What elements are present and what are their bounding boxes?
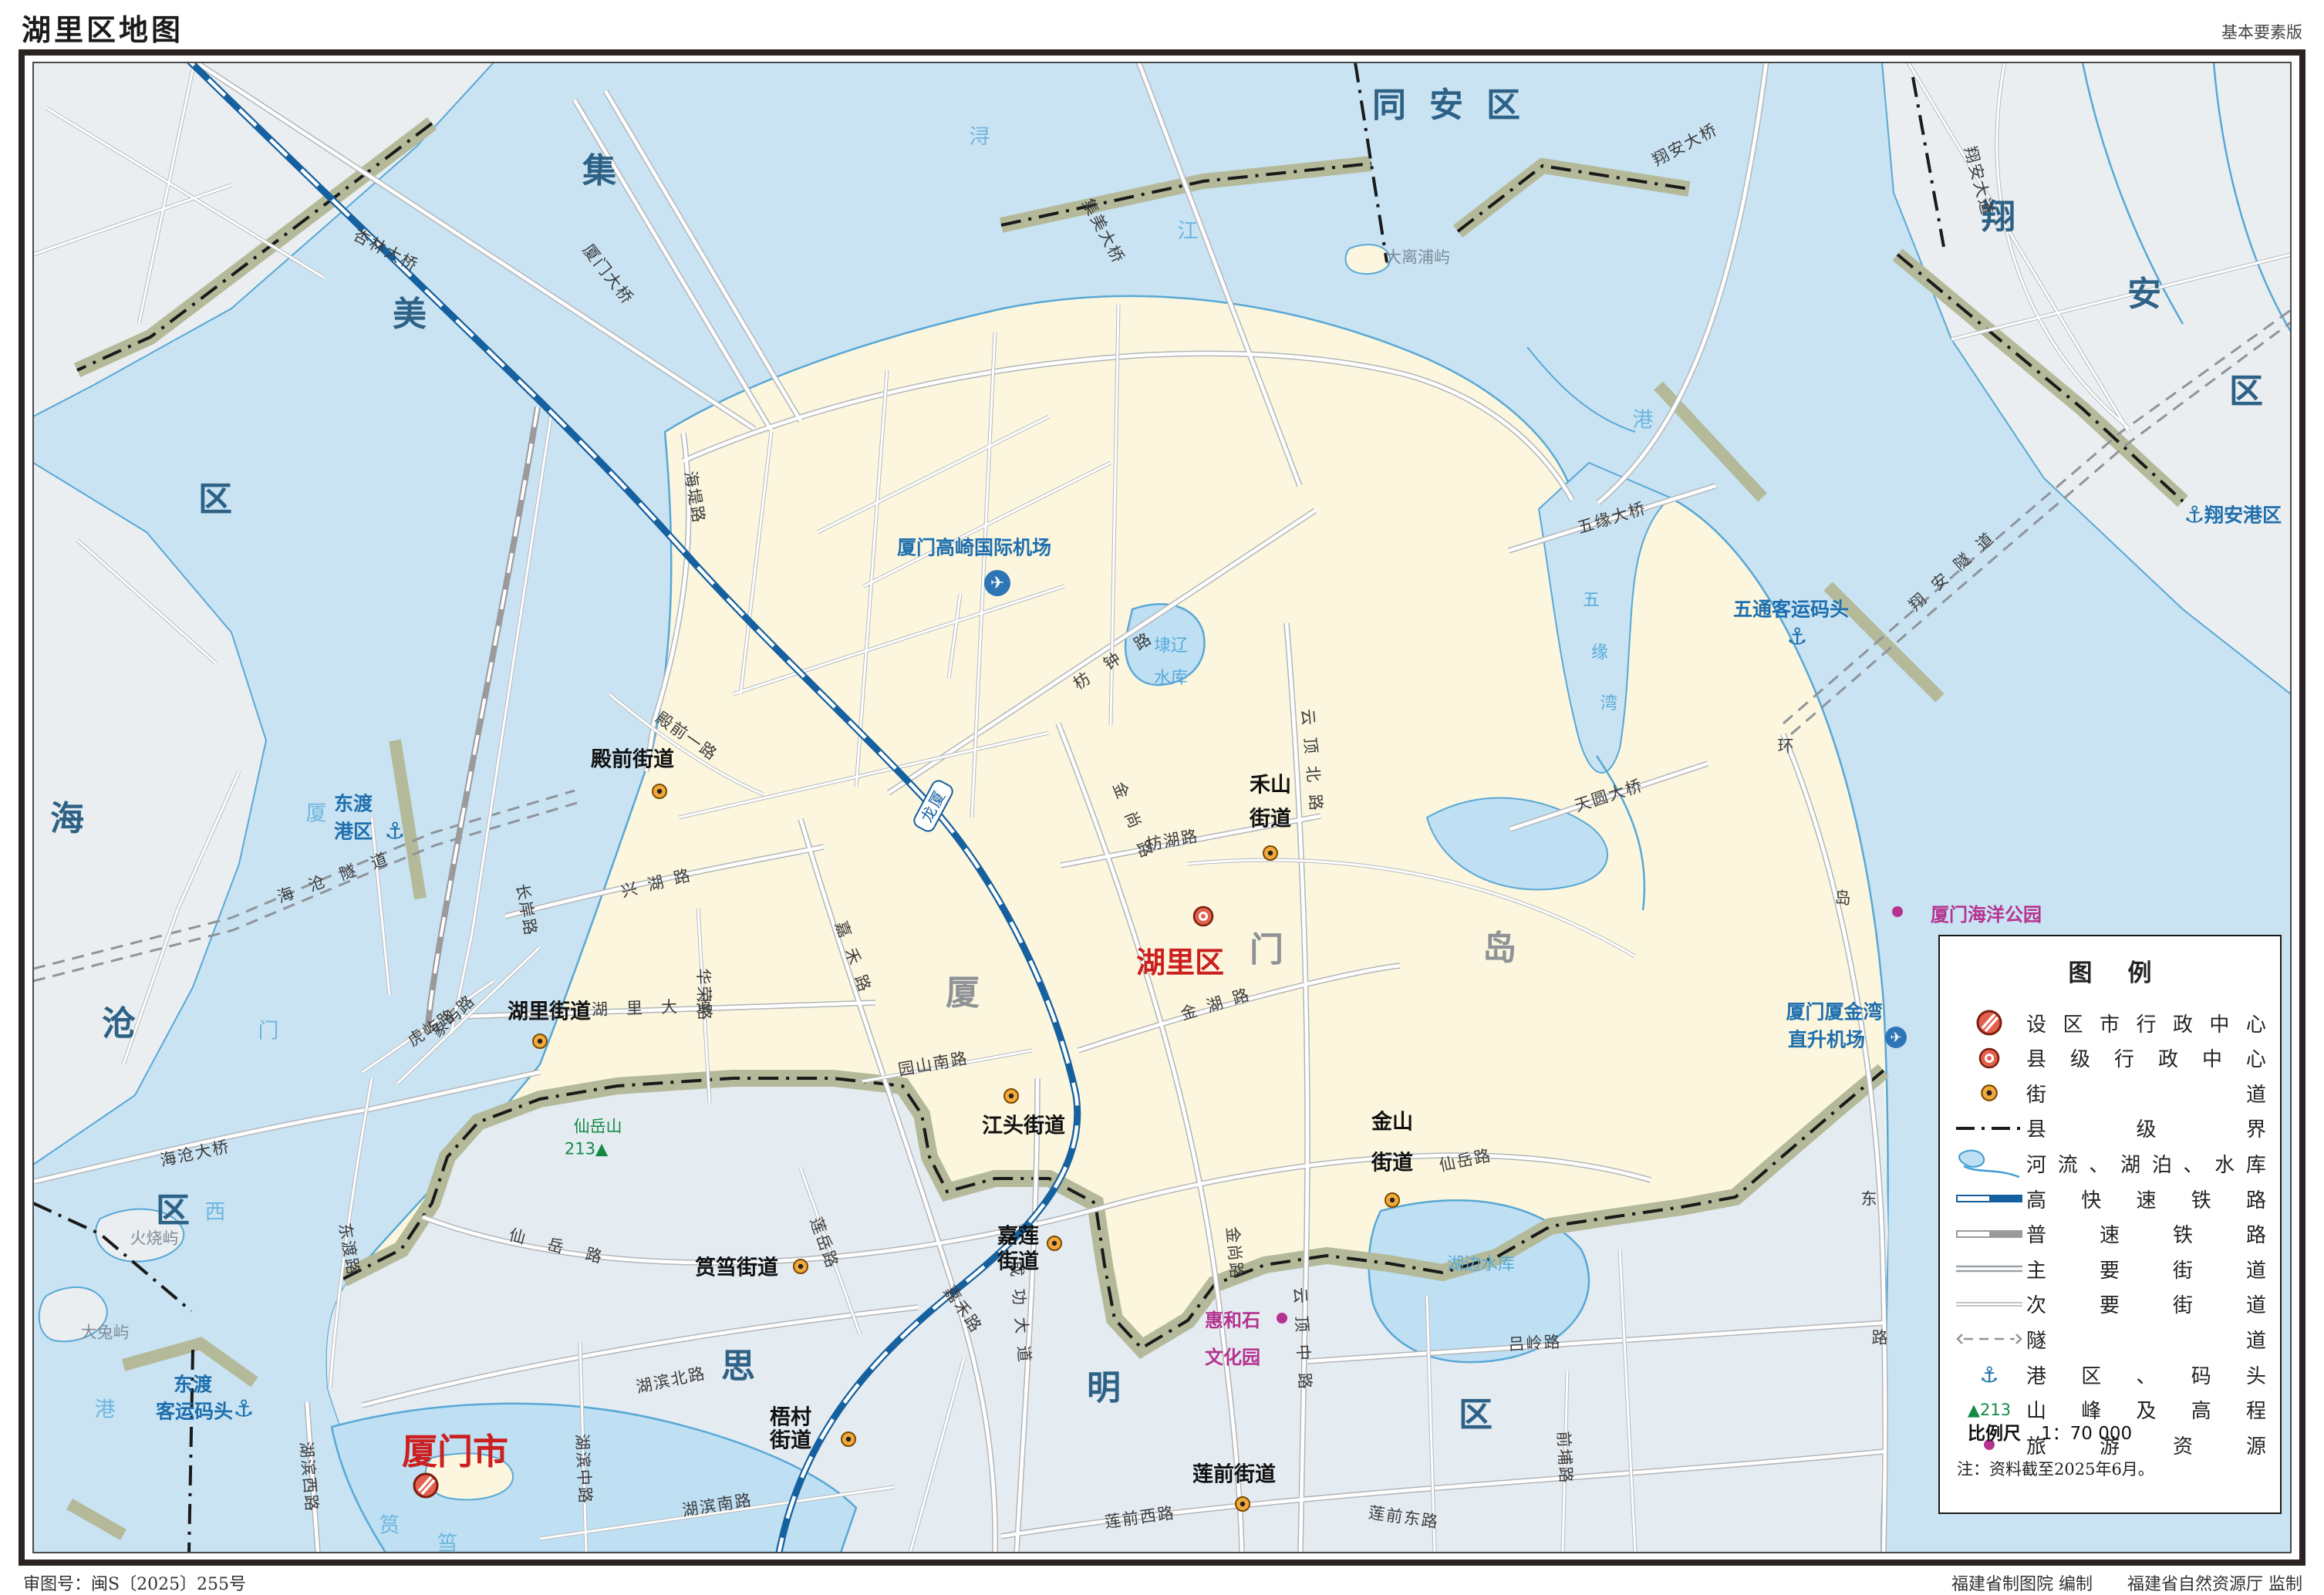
legend-item-label: 主要街道: [2026, 1255, 2266, 1283]
legend-item-rail: 普速铁路: [1952, 1217, 2266, 1251]
county-legend-icon: [1952, 1046, 2026, 1071]
legend-scale-value: 1：70 000: [2041, 1424, 2132, 1444]
legend-item-label: 高快速铁路: [2026, 1185, 2266, 1213]
legend-item-label: 河流、湖泊、水库: [2026, 1149, 2266, 1178]
legend-item-label: 设区市行政中心: [2026, 1009, 2266, 1037]
legend-item-city: 设区市行政中心: [1952, 1006, 2266, 1040]
legend-item-label: 县级界: [2026, 1114, 2266, 1142]
legend-item-label: 街道: [2026, 1079, 2266, 1108]
legend-item-hsr: 高快速铁路: [1952, 1182, 2266, 1216]
road-sec-legend-icon: [1952, 1300, 2026, 1309]
legend-item-label: 普速铁路: [2026, 1219, 2266, 1248]
legend-item-label: 次要街道: [2026, 1290, 2266, 1318]
rail-legend-icon: [1952, 1229, 2026, 1239]
legend-item-boundary: 县级界: [1952, 1111, 2266, 1145]
legend-item-label: 隧道: [2026, 1325, 2266, 1354]
peak-legend-icon: ▲213: [1952, 1401, 2026, 1419]
road-main-legend-icon: [1952, 1263, 2026, 1274]
legend-item-port: ⚓港区、码头: [1952, 1357, 2266, 1391]
legend-item-road-main: 主要街道: [1952, 1252, 2266, 1286]
legend-item-tunnel: 隧道: [1952, 1322, 2266, 1356]
street-legend-icon: [1952, 1083, 2026, 1103]
river-legend-icon: [1952, 1146, 2026, 1180]
legend-scale: 比例尺1：70 000: [1968, 1418, 2132, 1445]
legend-note: 注：资料截至2025年6月。: [1957, 1457, 2154, 1480]
approval-number: 审图号：闽S〔2025〕255号: [23, 1570, 246, 1595]
credit-supervise: 福建省自然资源厅 监制: [2127, 1575, 2302, 1594]
port-legend-icon: ⚓: [1952, 1362, 2026, 1388]
legend-item-county: 县级行政中心: [1952, 1041, 2266, 1075]
tunnel-legend-icon: [1952, 1333, 2026, 1345]
boundary-legend-icon: [1952, 1125, 2026, 1132]
legend-title: 图例: [1940, 953, 2280, 988]
legend: 图例 设区市行政中心县级行政中心街道县级界河流、湖泊、水库高快速铁路普速铁路主要…: [1938, 935, 2282, 1514]
credit-compile: 福建省制图院 编制: [1951, 1575, 2093, 1594]
credits: 福建省制图院 编制 福建省自然资源厅 监制: [1922, 1570, 2302, 1595]
legend-item-road-sec: 次要街道: [1952, 1287, 2266, 1321]
legend-scale-label: 比例尺: [1968, 1424, 2021, 1444]
city-legend-icon: [1952, 1007, 2026, 1038]
legend-item-street: 街道: [1952, 1076, 2266, 1110]
page: 湖里区地图 基本要素版: [0, 0, 2324, 1595]
legend-item-river: 河流、湖泊、水库: [1952, 1146, 2266, 1180]
hsr-legend-icon: [1952, 1193, 2026, 1204]
legend-item-label: 县级行政中心: [2026, 1044, 2266, 1072]
legend-item-label: 港区、码头: [2026, 1361, 2266, 1389]
